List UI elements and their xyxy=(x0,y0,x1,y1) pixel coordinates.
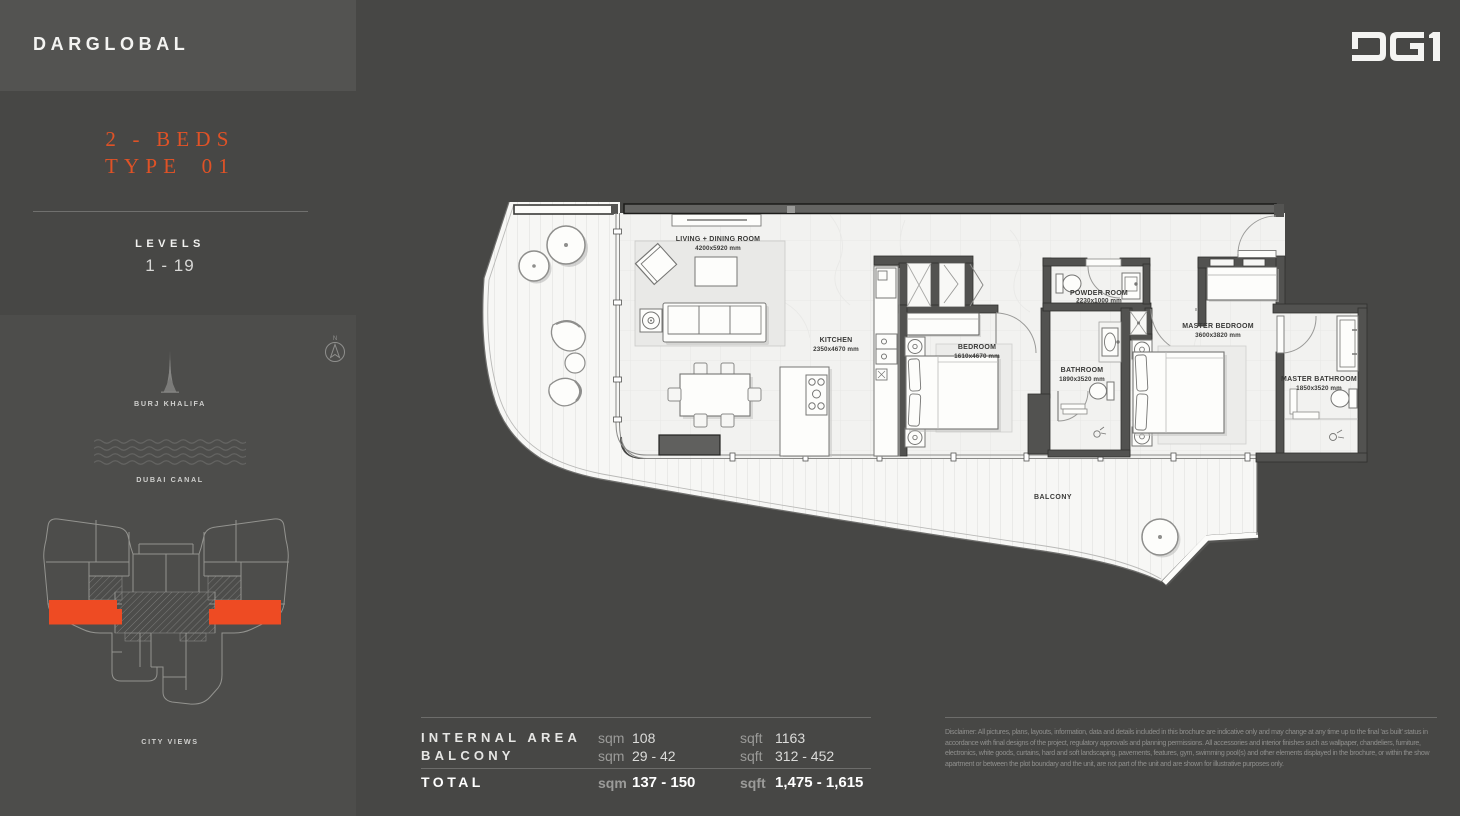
svg-text:BATHROOM: BATHROOM xyxy=(1061,367,1104,374)
svg-text:KITCHEN: KITCHEN xyxy=(820,337,853,344)
svg-text:3600x3820 mm: 3600x3820 mm xyxy=(1195,332,1241,339)
svg-text:2350x4670 mm: 2350x4670 mm xyxy=(813,346,859,353)
svg-text:1850x3520 mm: 1850x3520 mm xyxy=(1296,385,1342,392)
svg-text:LIVING + DINING ROOM: LIVING + DINING ROOM xyxy=(676,236,761,243)
svg-text:BEDROOM: BEDROOM xyxy=(958,344,996,351)
svg-text:N: N xyxy=(333,336,337,342)
svg-text:1890x3520 mm: 1890x3520 mm xyxy=(1059,376,1105,383)
svg-text:MASTER BATHROOM: MASTER BATHROOM xyxy=(1281,376,1357,383)
svg-text:1610x4670 mm: 1610x4670 mm xyxy=(954,353,1000,360)
svg-text:POWDER ROOM: POWDER ROOM xyxy=(1070,290,1128,297)
svg-text:4200x5920 mm: 4200x5920 mm xyxy=(695,245,741,252)
svg-text:2230x1000 mm: 2230x1000 mm xyxy=(1076,298,1122,305)
svg-text:BALCONY: BALCONY xyxy=(1034,494,1072,501)
svg-text:MASTER BEDROOM: MASTER BEDROOM xyxy=(1182,323,1254,330)
